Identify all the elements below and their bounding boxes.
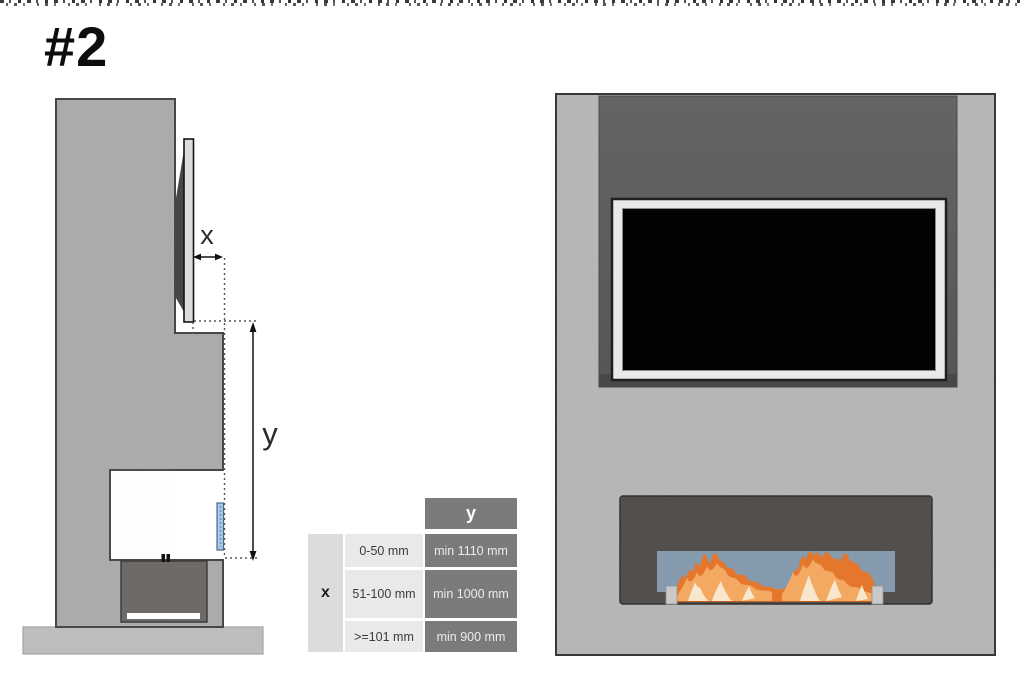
table-cell-y-min: min 900 mm [425, 621, 517, 652]
table-cell-x-range: 51-100 mm [345, 570, 423, 618]
dimension-x-label: x [190, 220, 224, 251]
arrowhead-down-icon [250, 551, 257, 561]
side-firebox-slot [127, 613, 200, 619]
table-header-x: x [308, 534, 343, 652]
table-cell-y-min: min 1000 mm [425, 570, 517, 618]
front-tv-screen [623, 209, 936, 371]
table-cell-x-range: >=101 mm [345, 621, 423, 652]
table-cell-y-min: min 1110 mm [425, 534, 517, 567]
table-cell-x-range: 0-50 mm [345, 534, 423, 567]
burner-bracket-right [872, 586, 883, 604]
arrowhead-right-icon [215, 254, 223, 261]
side-base-slab [23, 627, 263, 654]
side-tv-bracket [176, 150, 184, 312]
side-wall-grain [57, 100, 174, 626]
burner-bracket-left [666, 586, 677, 604]
arrowhead-up-icon [250, 322, 257, 332]
dimension-y-label: y [253, 416, 287, 452]
side-firebox [121, 561, 207, 622]
burner-mark-icon [162, 554, 166, 562]
burner-mark-icon [167, 554, 171, 562]
table-header-y: y [425, 498, 517, 529]
figure-canvas: #2 [0, 0, 1024, 693]
